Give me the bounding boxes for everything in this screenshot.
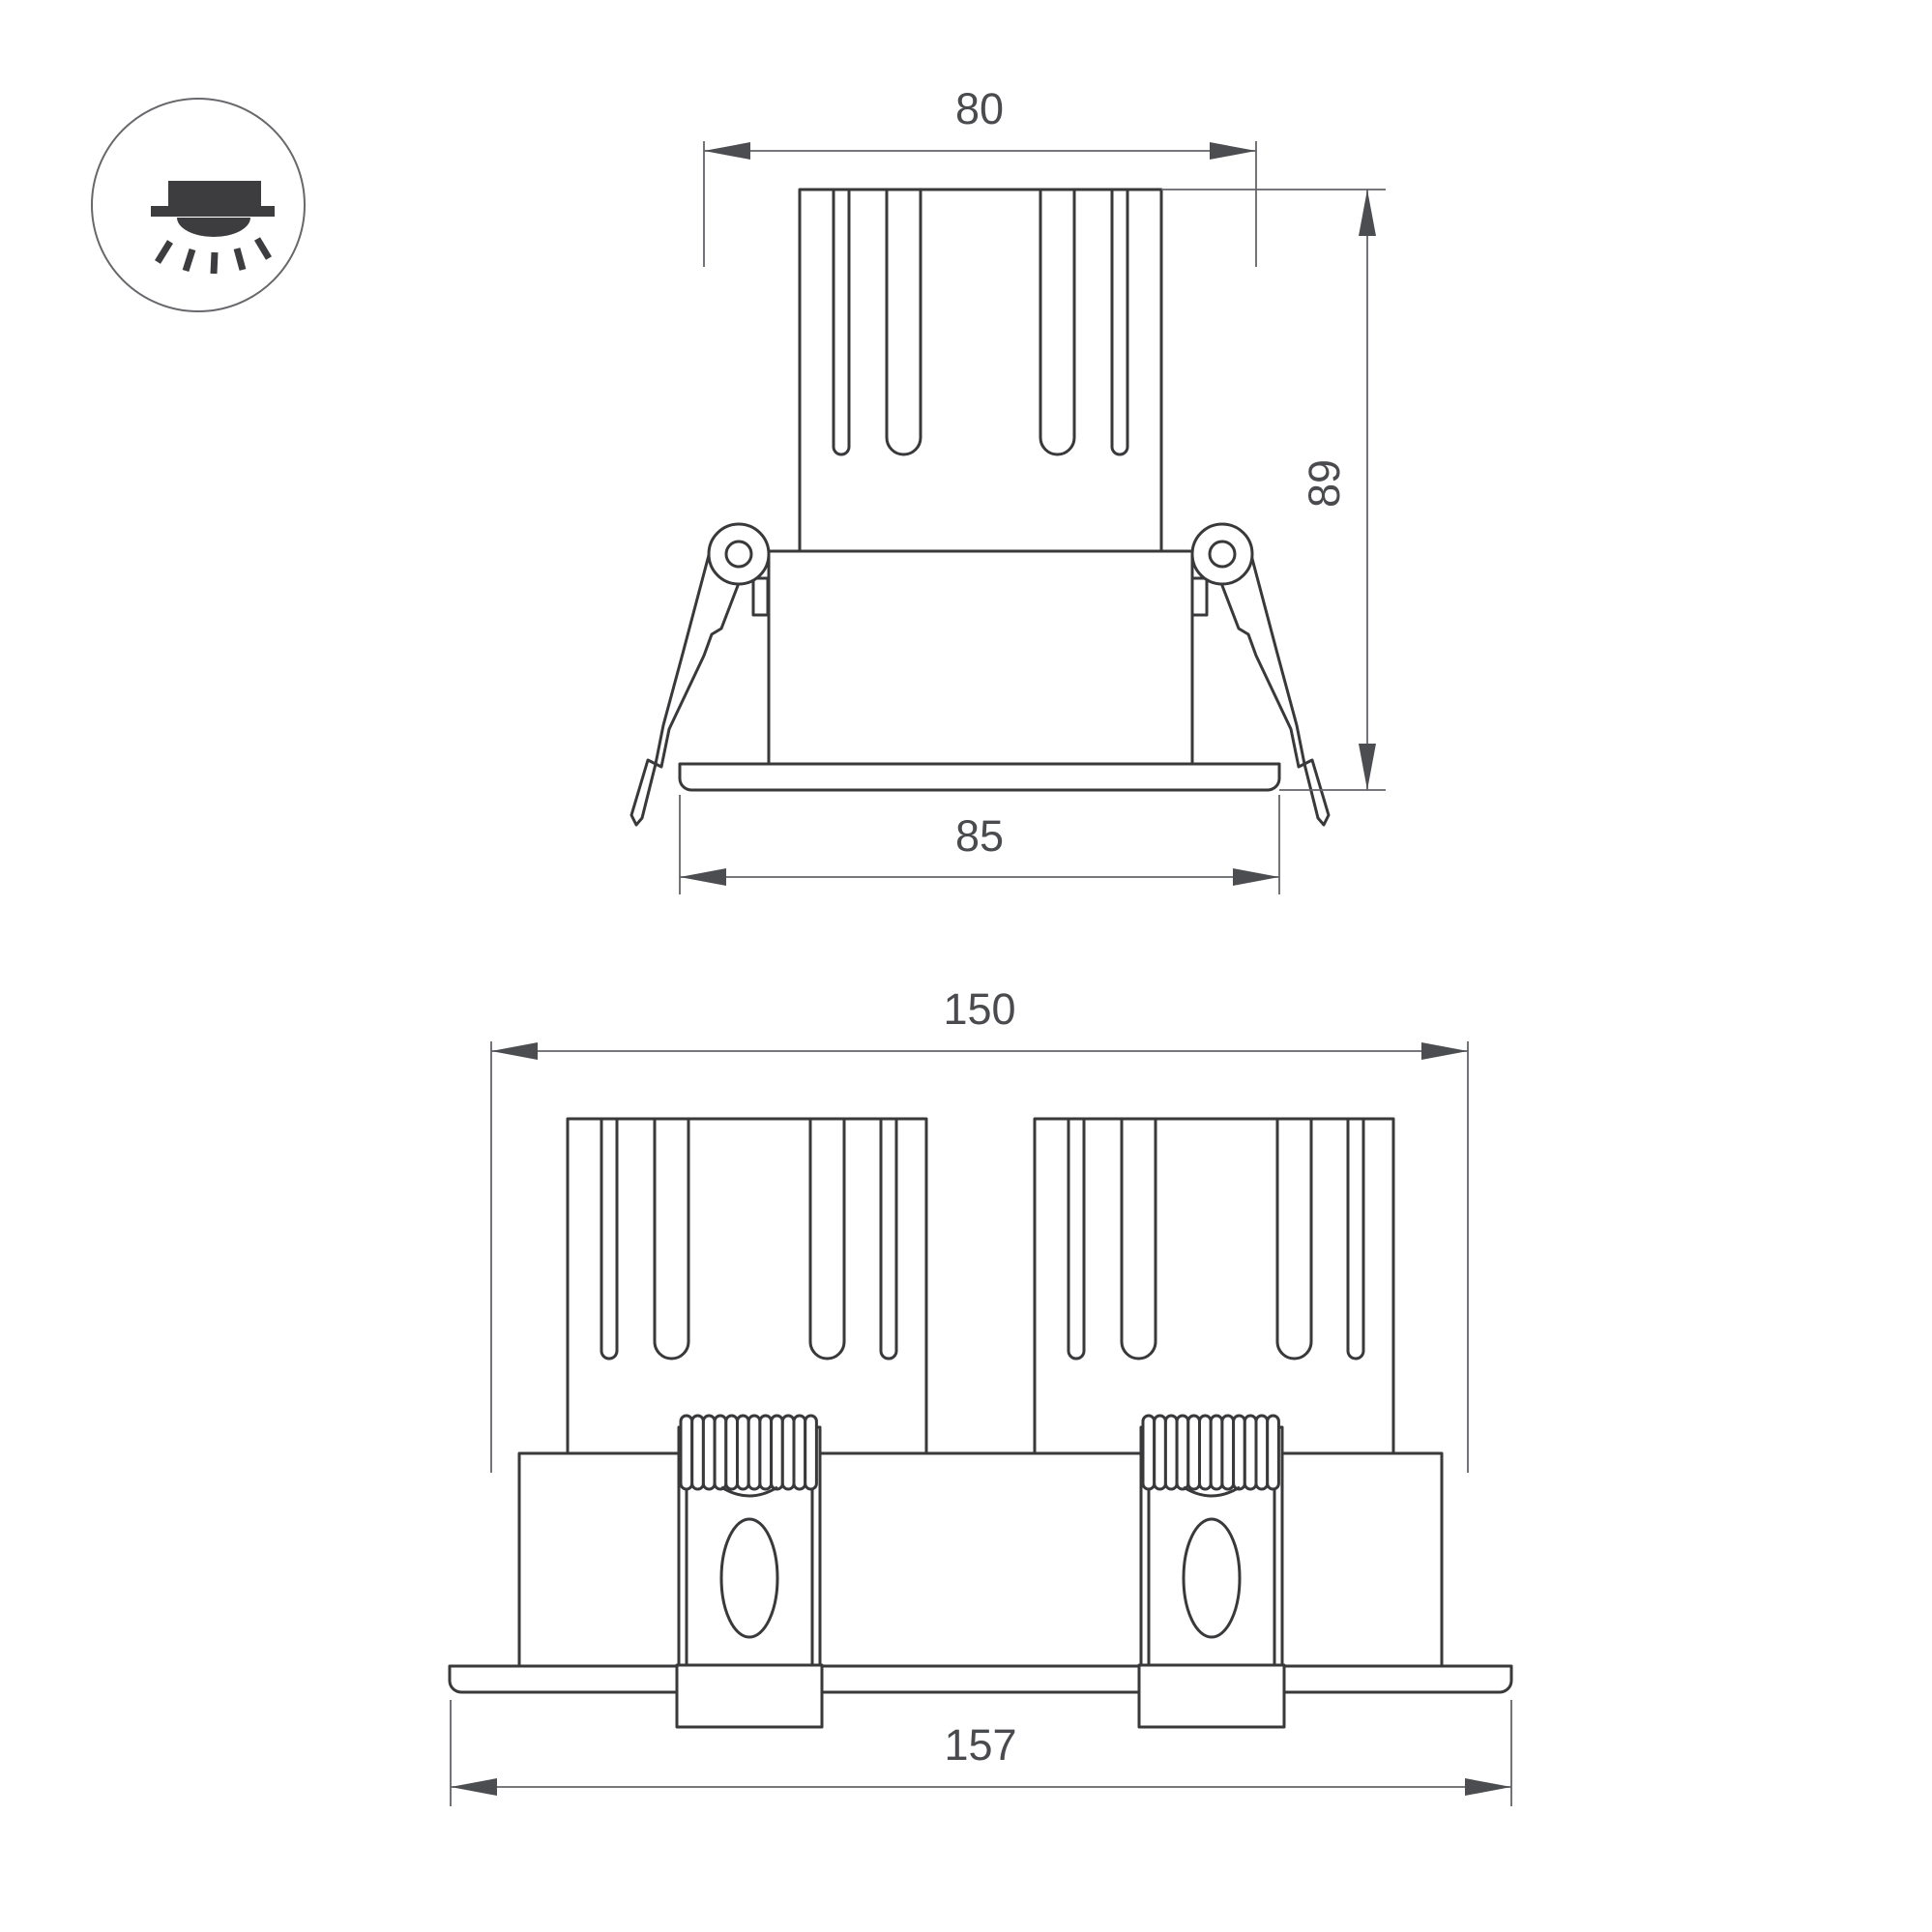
dimension-85: 85 <box>680 795 1279 894</box>
lamp-body-icon <box>168 181 261 209</box>
heatsink-fin-slots <box>834 190 1127 454</box>
right-heatsink-block <box>1035 1119 1393 1453</box>
dual-trim-flange <box>450 1666 1511 1692</box>
single-unit-front-view: 80 89 85 <box>631 84 1386 894</box>
right-heatsink-fin-slots <box>1068 1119 1363 1359</box>
dimension-label-89: 89 <box>1300 459 1349 508</box>
adjustment-slot <box>721 1519 777 1637</box>
trim-flange <box>680 764 1279 790</box>
coil-spring <box>681 1416 816 1496</box>
light-rays-icon <box>158 239 269 274</box>
dimension-80: 80 <box>704 84 1256 267</box>
adjustment-slot <box>1184 1519 1240 1637</box>
dimension-150: 150 <box>491 984 1468 1473</box>
dimension-label-80: 80 <box>955 84 1004 133</box>
ceiling-line-icon <box>151 206 275 217</box>
right-mounting-bracket <box>1139 1416 1284 1727</box>
dimension-157: 157 <box>451 1700 1511 1806</box>
dimension-label-157: 157 <box>944 1720 1016 1770</box>
dual-unit-front-view: 150 157 <box>450 984 1511 1806</box>
luminaire-can-body <box>769 551 1192 764</box>
left-spring-clip <box>631 524 769 825</box>
right-spring-clip <box>1192 524 1329 825</box>
recessed-ceiling-light-icon <box>92 99 305 311</box>
dimension-label-150: 150 <box>943 984 1015 1034</box>
heatsink-block <box>800 190 1161 551</box>
left-heatsink-fin-slots <box>601 1119 896 1359</box>
lamp-dome-icon <box>177 218 250 237</box>
drawing-sheet: 80 89 85 <box>0 0 1932 1932</box>
left-mounting-bracket <box>677 1416 822 1727</box>
coil-spring <box>1143 1416 1278 1496</box>
dimension-89: 89 <box>1161 190 1386 790</box>
technical-drawing-canvas: 80 89 85 <box>0 0 1932 1932</box>
bracket-foot <box>1139 1665 1284 1727</box>
bracket-foot <box>677 1665 822 1727</box>
dual-body <box>519 1453 1442 1666</box>
dimension-label-85: 85 <box>955 811 1004 861</box>
left-heatsink-block <box>568 1119 926 1453</box>
